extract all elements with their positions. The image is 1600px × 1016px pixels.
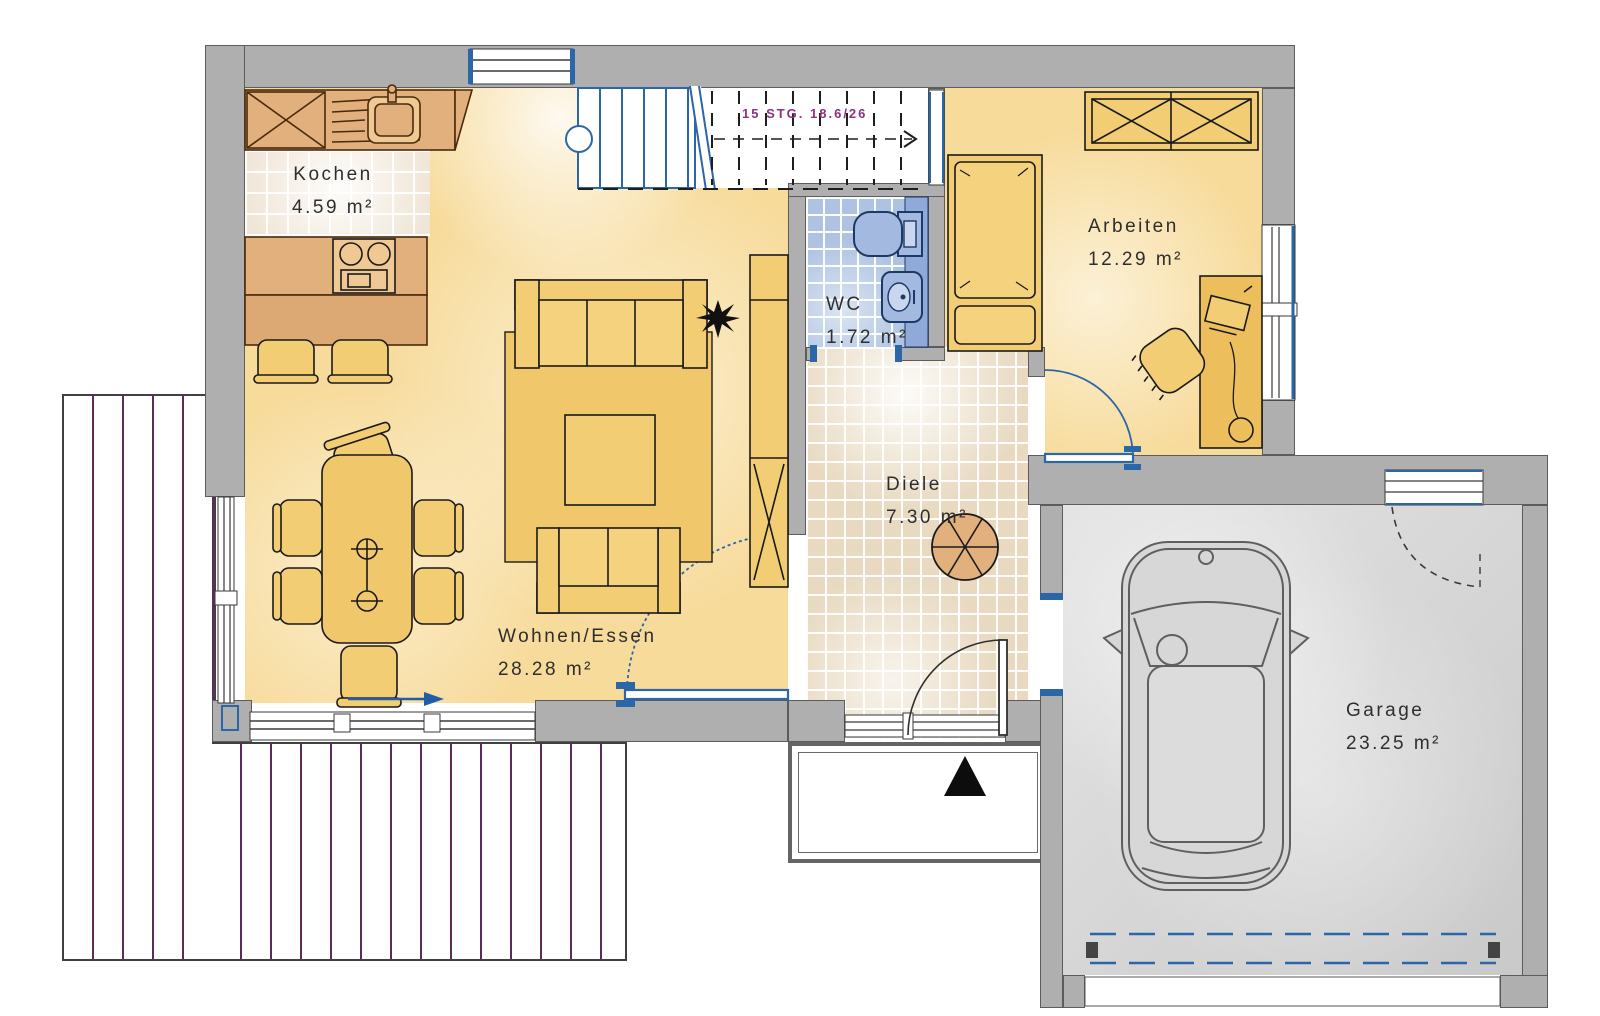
room-name: Kochen [252,158,414,191]
staircase [566,86,928,190]
room-label-wohnen: Wohnen/Essen 28.28 m² [498,620,657,686]
kitchen-bar [245,295,427,345]
room-label-garage: Garage 23.25 m² [1346,694,1441,760]
room-area: 1.72 m² [826,321,908,354]
garage-side-door [1385,470,1483,587]
dining-set [273,421,463,707]
kitchen-stools [254,340,392,383]
room-area: 7.30 m² [886,501,968,534]
desk [1200,276,1262,448]
sofa-3seat [515,280,707,368]
garage-door [1085,934,1500,1006]
entrance-marker [944,756,986,796]
room-name: WC [826,288,908,321]
room-area: 4.59 m² [252,191,414,224]
toilet [854,212,922,256]
guest-bed [948,155,1042,351]
dining-chair-left-2 [273,568,322,624]
door-office [1045,370,1141,470]
sofa-2seat [537,528,680,613]
room-label-diele: Diele 7.30 m² [886,468,968,534]
car [1104,542,1308,890]
window-east-office [1260,225,1297,400]
car-mirror-right [1290,630,1308,654]
office-chair [1128,323,1210,403]
window-south-living [222,706,535,740]
plan-linework [0,0,1600,1016]
sofa-group [505,255,788,613]
wardrobe [1085,92,1258,150]
room-area: 23.25 m² [1346,727,1441,760]
dining-chair-right-1 [414,500,463,556]
room-name: Garage [1346,694,1441,727]
room-area: 12.29 m² [1088,243,1183,276]
window-west-living [215,497,237,703]
stair-upper-flight [566,88,695,188]
stool-1 [254,340,318,383]
kitchen-counter-corner [455,90,472,150]
car-mirror-left [1104,630,1122,654]
stair-note: 15 STG. 18.6/26 [742,106,867,121]
room-label-kochen: Kochen 4.59 m² [252,158,414,224]
shelf-cabinet [750,255,788,587]
dining-chair-left-1 [273,500,322,556]
room-name: Diele [886,468,968,501]
front-door [845,640,1007,739]
room-label-arbeiten: Arbeiten 12.29 m² [1088,210,1183,276]
kitchen-stove [333,239,395,293]
door-diele-garage [1040,593,1063,696]
room-name: Arbeiten [1088,210,1183,243]
floor-plan: Kochen 4.59 m² Wohnen/Essen 28.28 m² WC … [0,0,1600,1016]
window-north-wc [929,90,944,185]
doors [616,345,1500,1006]
coffee-table [565,415,655,505]
room-label-wc: WC 1.72 m² [826,288,908,354]
car-roof [1148,666,1264,842]
dining-chair-right-2 [414,568,463,624]
room-area: 28.28 m² [498,653,657,686]
stool-2 [328,340,392,383]
window-north-living [468,49,575,84]
room-name: Wohnen/Essen [498,620,657,653]
